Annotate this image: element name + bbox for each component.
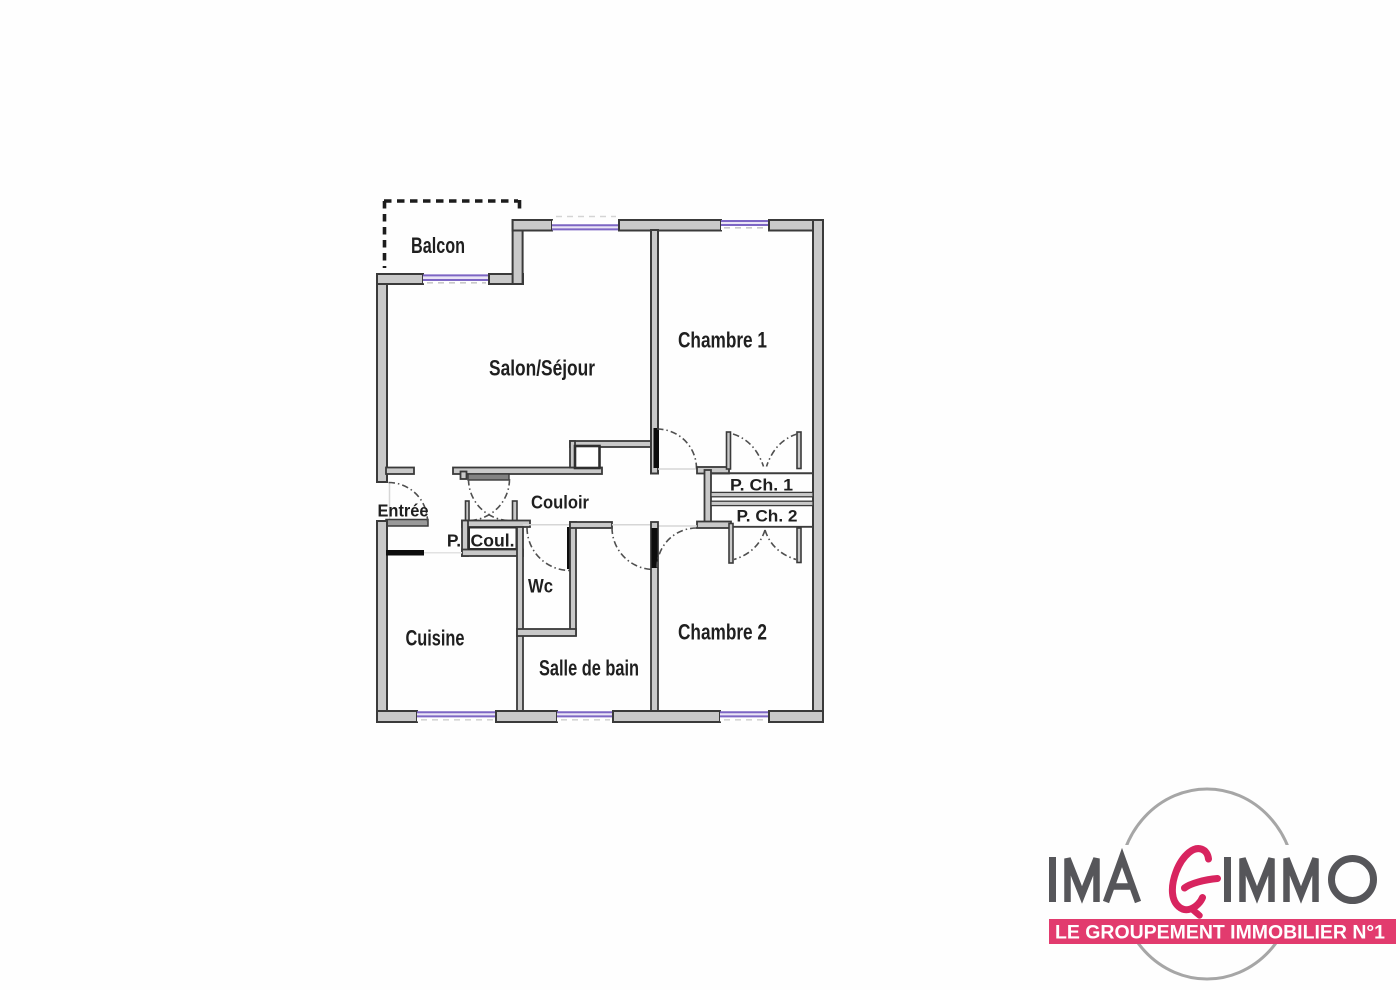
svg-text:Couloir: Couloir <box>531 492 589 513</box>
svg-text:Cuisine: Cuisine <box>406 626 465 651</box>
svg-text:Salon/Séjour: Salon/Séjour <box>489 356 595 381</box>
svg-text:Chambre 2: Chambre 2 <box>678 620 767 645</box>
svg-text:Balcon: Balcon <box>411 233 465 258</box>
svg-text:Salle de bain: Salle de bain <box>539 656 639 681</box>
svg-text:Wc: Wc <box>528 577 553 598</box>
svg-text:Entrée: Entrée <box>378 501 429 521</box>
svg-text:LE GROUPEMENT IMMOBILIER N°1: LE GROUPEMENT IMMOBILIER N°1 <box>1055 923 1385 944</box>
svg-text:Chambre 1: Chambre 1 <box>678 328 767 353</box>
svg-text:P. Ch. 1: P. Ch. 1 <box>730 477 793 495</box>
svg-text:P.: P. <box>447 531 461 551</box>
svg-text:Coul.: Coul. <box>471 531 515 551</box>
svg-text:P. Ch. 2: P. Ch. 2 <box>737 508 798 526</box>
